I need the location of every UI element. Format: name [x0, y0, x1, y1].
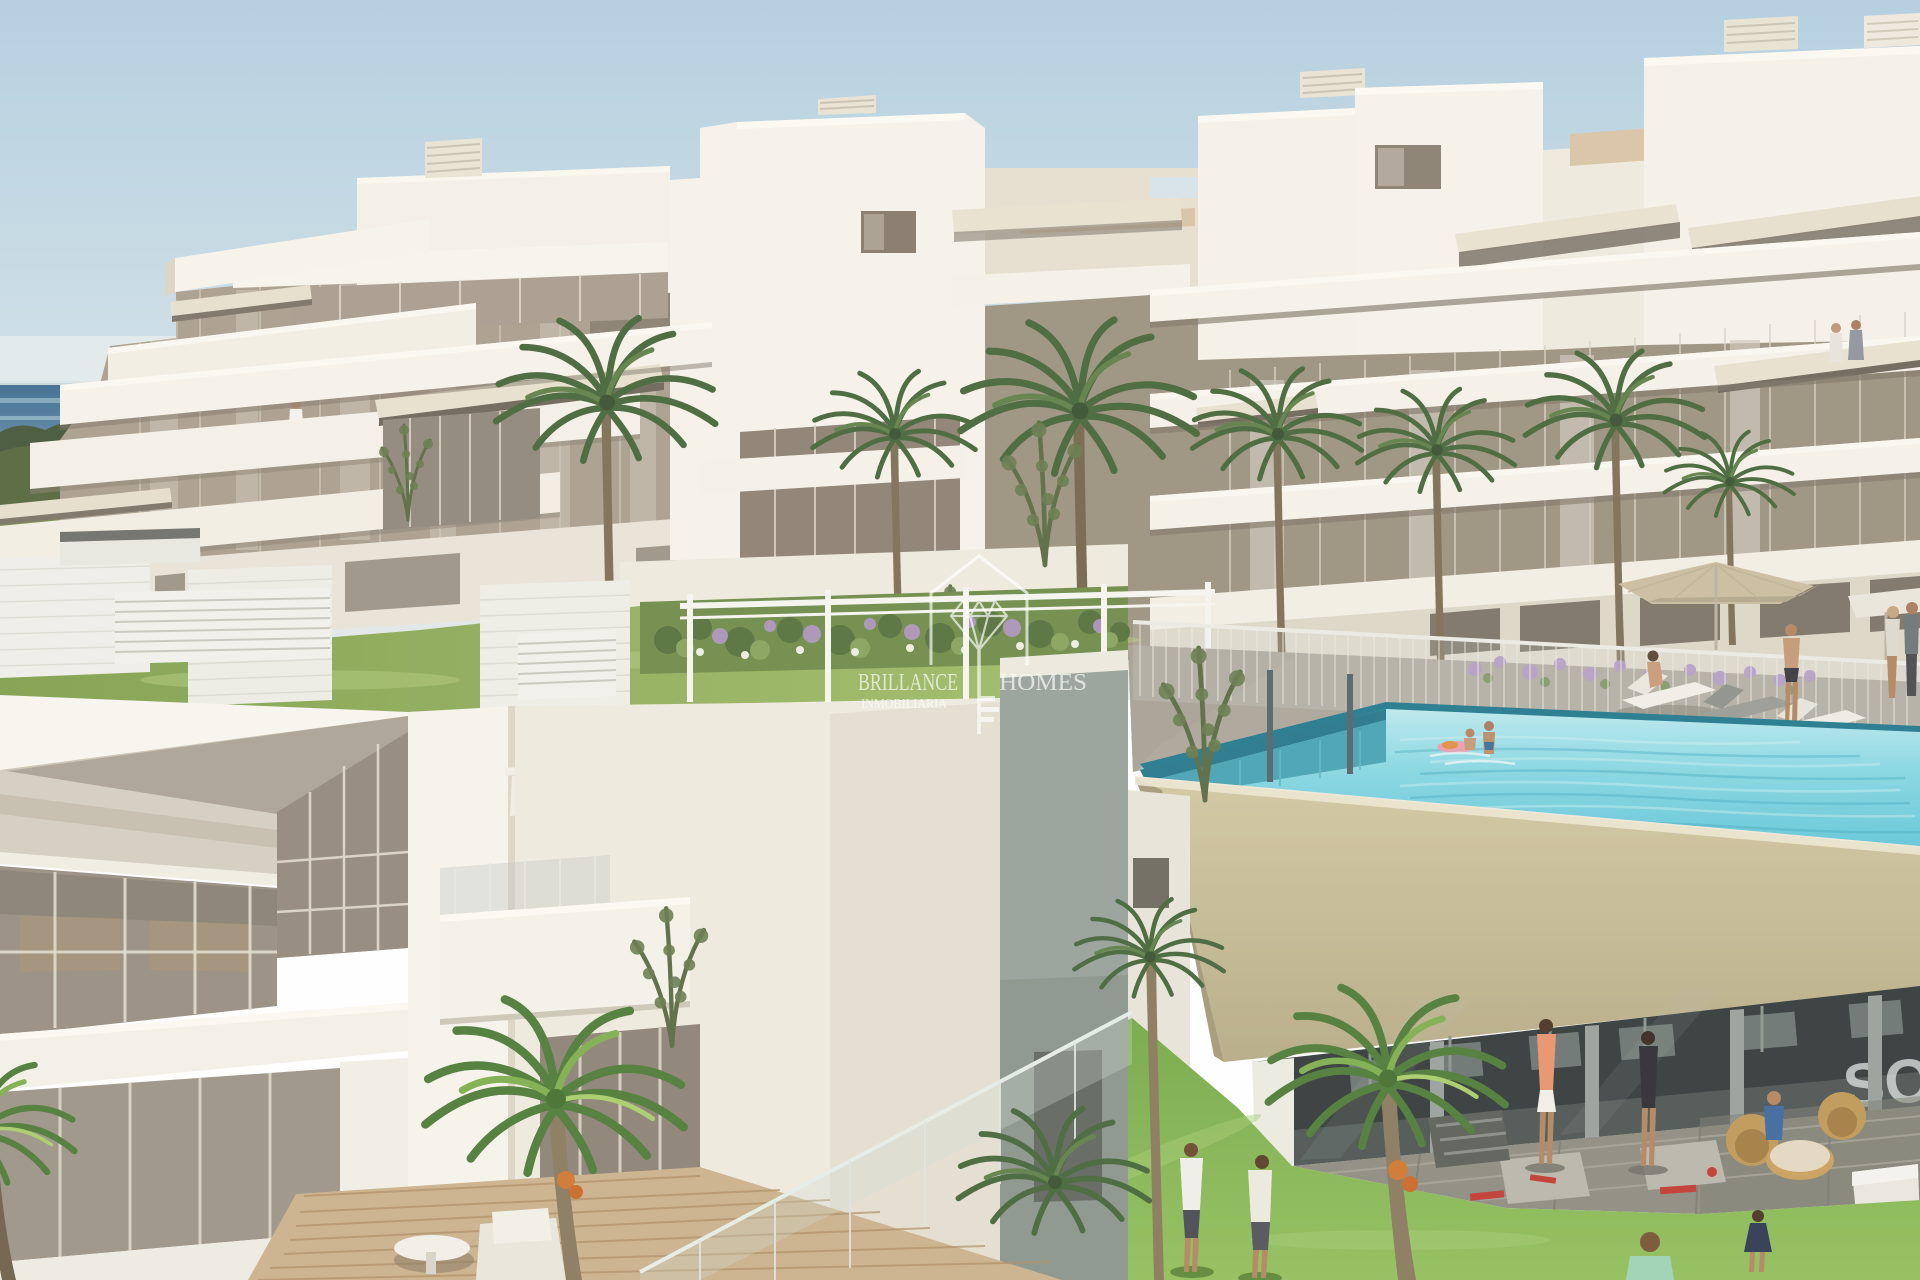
svg-text:BRILLANCE: BRILLANCE	[858, 670, 958, 696]
svg-text:HOMES: HOMES	[999, 670, 1087, 696]
svg-text:INMOBILIARIA: INMOBILIARIA	[861, 697, 948, 712]
